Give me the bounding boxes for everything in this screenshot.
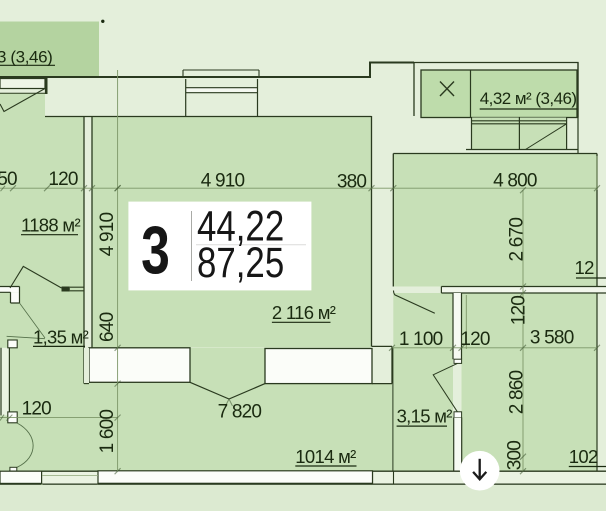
- svg-text:1 600: 1 600: [97, 410, 118, 454]
- svg-text:4 800: 4 800: [493, 171, 537, 192]
- svg-text:640: 640: [97, 312, 118, 342]
- svg-text:1,35 м²: 1,35 м²: [33, 327, 89, 348]
- svg-text:120: 120: [460, 329, 490, 350]
- svg-text:7 820: 7 820: [218, 401, 262, 422]
- svg-text:3 (3,46): 3 (3,46): [0, 48, 52, 67]
- svg-text:102: 102: [569, 446, 598, 467]
- svg-text:1014 м²: 1014 м²: [295, 446, 356, 467]
- svg-text:4 910: 4 910: [97, 212, 118, 256]
- svg-text:120: 120: [48, 169, 78, 190]
- svg-text:380: 380: [337, 172, 367, 193]
- svg-text:3,15 м²: 3,15 м²: [397, 406, 453, 427]
- svg-text:120: 120: [508, 296, 529, 326]
- svg-text:1188 м²: 1188 м²: [21, 215, 80, 236]
- svg-text:1 100: 1 100: [399, 329, 443, 350]
- svg-text:2 670: 2 670: [507, 218, 528, 262]
- svg-text:50: 50: [0, 169, 17, 190]
- svg-text:2 116 м²: 2 116 м²: [272, 302, 336, 323]
- svg-text:3 580: 3 580: [530, 328, 574, 349]
- svg-text:4 910: 4 910: [201, 171, 245, 192]
- svg-text:3: 3: [141, 211, 170, 288]
- svg-text:87,25: 87,25: [197, 240, 284, 287]
- svg-text:120: 120: [22, 399, 52, 420]
- svg-text:300: 300: [504, 441, 525, 471]
- svg-text:2 860: 2 860: [506, 370, 527, 414]
- svg-text:4,32 м² (3,46): 4,32 м² (3,46): [480, 89, 577, 108]
- svg-text:12: 12: [575, 257, 595, 278]
